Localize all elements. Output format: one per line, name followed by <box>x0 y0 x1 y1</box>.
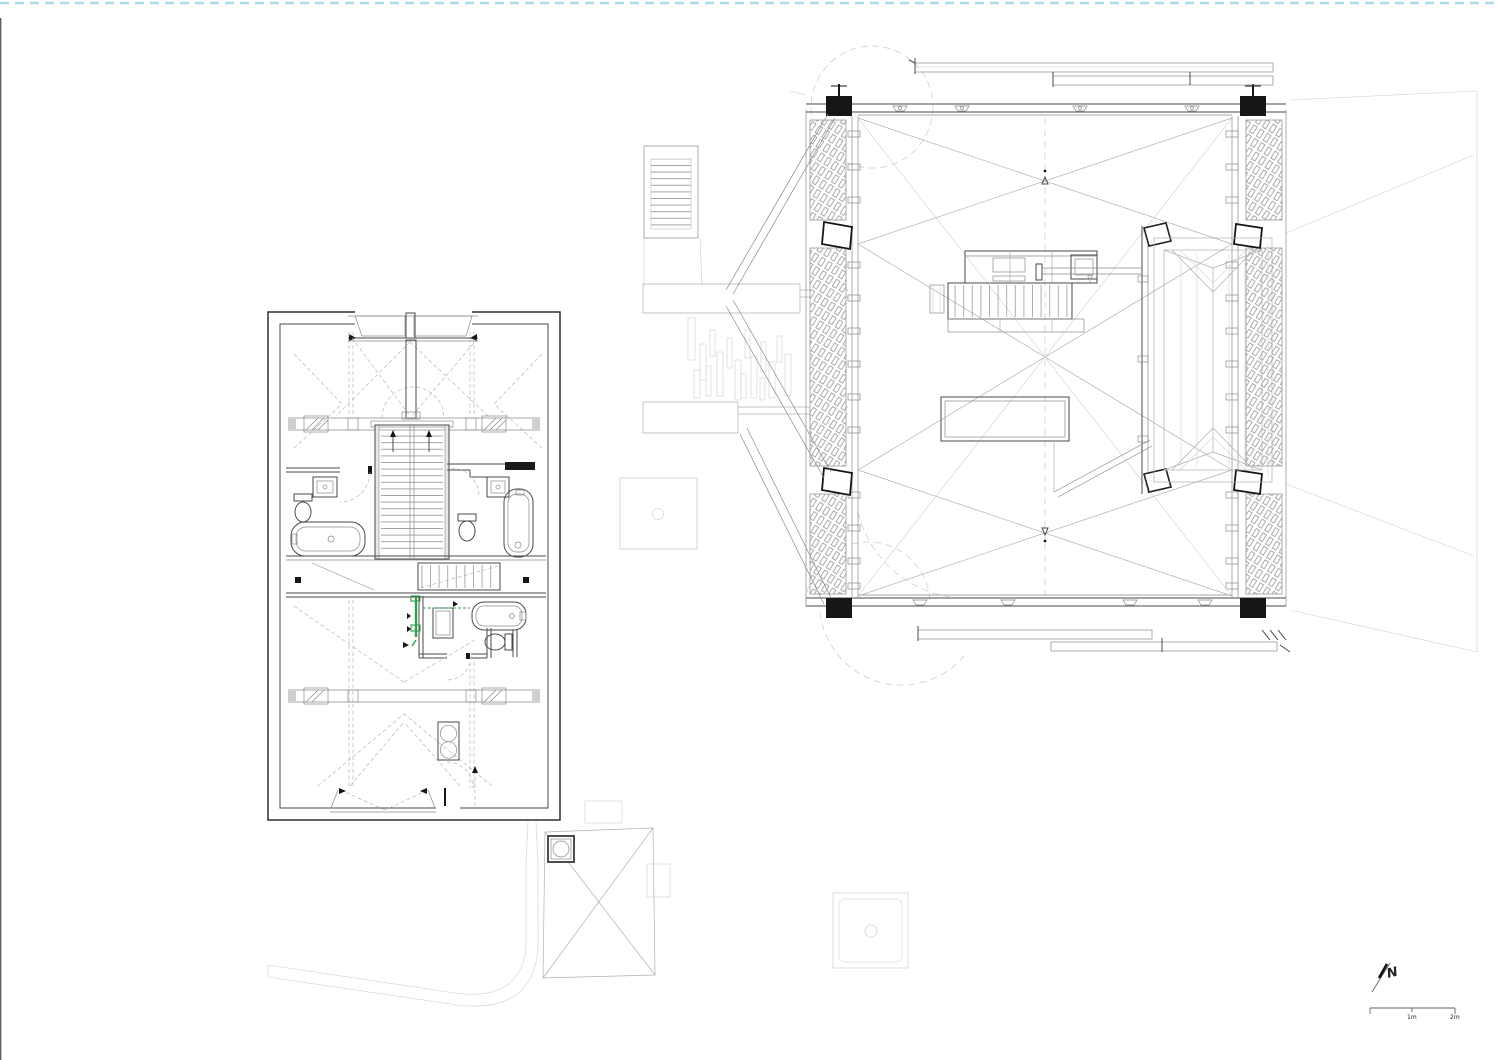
setting-out-lines <box>858 118 1232 596</box>
bathroom-upper-right <box>447 462 535 557</box>
cad-canvas: N 1m 2m <box>0 0 1500 1060</box>
rooflight-square-bottom <box>833 893 908 968</box>
kitchen-unit <box>930 251 1097 332</box>
overhang-outline <box>790 91 1477 652</box>
wall-right-hatched <box>1226 110 1286 606</box>
top-tracks <box>909 58 1273 87</box>
beam-band-lower <box>288 688 540 704</box>
access-road <box>268 822 538 1006</box>
north-label: N <box>1385 965 1399 982</box>
scale-bar: 1m 2m <box>1370 1008 1460 1021</box>
center-marker-bottom <box>1042 528 1048 542</box>
right-roof-plan <box>726 46 1477 685</box>
outer-walls <box>268 312 560 820</box>
rooflight-square-left <box>620 478 697 549</box>
corner-posts <box>822 84 1266 618</box>
top-dormer <box>348 310 478 341</box>
flue-twin-circles <box>438 722 459 760</box>
roof-framing-lower <box>294 600 492 788</box>
canopy-corner-box <box>548 836 574 862</box>
bottom-tracks <box>918 626 1290 652</box>
kitchen-sink <box>1071 255 1097 284</box>
mid-stair <box>644 146 702 286</box>
roof-framing-upper <box>294 332 542 448</box>
bathroom-upper-left <box>286 466 372 556</box>
wall-bottom <box>806 595 1286 606</box>
drawing-sheet: N 1m 2m <box>0 0 1500 1060</box>
bottom-dormer <box>330 762 478 818</box>
courtyard-canopy <box>543 801 670 978</box>
scale-tick-1m: 1m <box>1407 1014 1417 1021</box>
scale-tick-2m: 2m <box>1450 1014 1460 1021</box>
wall-left-hatched <box>806 110 860 606</box>
louver-opening-lower <box>941 397 1069 441</box>
main-stair <box>371 421 453 559</box>
left-floor-plan <box>268 310 560 820</box>
bathroom-lower <box>403 596 526 680</box>
landing <box>286 556 546 597</box>
north-arrow: N <box>1372 963 1400 992</box>
wall-top <box>806 104 1286 115</box>
